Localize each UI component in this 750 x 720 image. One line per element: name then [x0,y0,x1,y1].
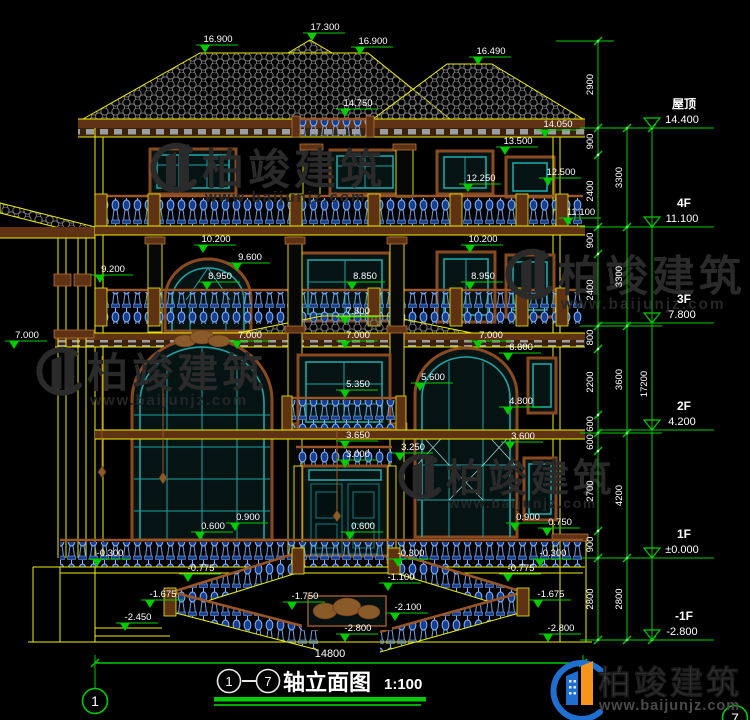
dim-chain-label: 2800 [614,588,625,609]
dim-chain-label: 2800 [585,588,596,609]
level-value: 14.400 [665,114,699,126]
drawing-title: 轴立面图 [283,670,371,695]
dim-tick-node [597,414,599,416]
elevation-mark-label: -1.675 [150,589,177,600]
bottom-dim-label: 14800 [315,648,346,660]
watermark-logo-icon [521,258,531,293]
dim-chain-label: 900 [585,233,596,249]
elevation-mark-label: 0.900 [236,512,260,523]
level-value: 11.100 [666,213,699,225]
elevation-mark-label: 8.850 [353,271,377,282]
elevation-mark-label: 16.900 [358,36,387,47]
level-name: 3F [677,292,691,306]
elevation-mark-label: 14.050 [543,119,572,130]
axis-number: 1 [91,693,99,709]
elevation-mark-label: 7.000 [479,330,503,341]
elevation-mark-label: 16.900 [203,34,232,45]
dim-chain-label: 800 [585,330,596,346]
watermark-logo-icon [64,348,74,389]
elevation-mark-label: 3.000 [346,449,370,460]
elevation-mark-label: 0.750 [548,517,572,528]
dim-tick-node [597,154,599,156]
elevation-mark-label: -2.800 [345,623,372,634]
dim-chain-label: 600 [585,434,596,450]
level-value: 4.200 [668,416,696,428]
level-value: ±0.000 [665,544,699,556]
elevation-drawing-canvas: 柏竣建筑www.baijunjz.com柏竣建筑www.baijunjz.com… [0,0,750,720]
watermark-logo-icon [166,152,176,186]
dim-chain-label: 3600 [614,369,625,390]
elevation-mark-label: 11.100 [567,207,595,218]
elevation-mark-label: 8.950 [208,271,232,282]
watermark-url-text: www.baijunjz.com [448,496,598,511]
watermark-logo-icon [535,250,545,293]
logo-building-left-icon [566,671,578,705]
elevation-mark-label: 3.250 [401,442,425,453]
dim-tick-node [597,450,599,452]
elevation-mark-label: -0.300 [540,548,567,559]
title-underline-thin [214,704,421,706]
elevation-mark-label: 10.200 [468,234,497,245]
elevation-mark-label: -1.750 [292,591,319,602]
dim-chain-label: 3300 [614,266,625,287]
elevation-mark-label: 13.500 [503,136,532,147]
elevation-mark-label: 10.200 [201,234,230,245]
elevation-mark-label: -2.450 [125,612,152,623]
elevation-mark-label: 8.950 [471,271,495,282]
elevation-mark-label: -0.775 [508,563,535,574]
dim-chain-label: 2900 [585,74,596,95]
watermark-brand-text: 柏竣建筑 [87,350,267,396]
elevation-mark-label: 7.800 [346,306,370,317]
level-name: 4F [677,196,691,210]
watermark-logo-icon [425,455,434,494]
elevation-mark-label: 3.650 [346,430,370,441]
title-underline-thick [214,697,426,702]
elevation-mark-label: 12.500 [546,167,575,178]
elevation-mark-label: 3.600 [511,431,535,442]
dim-chain-label: 2200 [585,371,596,392]
elevation-mark-label: 0.600 [351,521,375,532]
elevation-mark-label: 7.000 [238,330,262,341]
dim-tick-node [597,530,599,532]
watermark-logo-icon [52,356,62,389]
dim-chain-label: 2400 [585,279,596,300]
watermark-url-text: www.baijunjz.com [204,189,366,206]
elevation-mark-label: 9.600 [238,252,262,263]
watermark-logo-icon [413,462,422,493]
drawing-scale: 1:100 [384,676,422,693]
elevation-mark-label: 9.200 [101,264,125,275]
dim-chain-label: 900 [585,537,596,553]
level-name: -1F [675,609,693,623]
title-axis-start-number: 1 [225,674,232,689]
dim-chain-label: 2400 [585,180,596,201]
elevation-mark-label: 5.350 [346,379,370,390]
elevation-mark-label: -2.800 [548,623,575,634]
roof-tower-parapet [292,116,374,137]
elevation-mark-label: -0.300 [97,548,124,559]
elevation-mark-label: -1.100 [388,572,415,583]
dim-tick-node [597,253,599,255]
dim-chain-label: 17200 [639,371,650,397]
elevation-mark-label: 4.800 [509,396,533,407]
elevation-mark-label: -0.775 [188,563,215,574]
elevation-mark-label: -1.675 [538,589,565,600]
elevation-mark-label: 17.300 [310,22,339,33]
watermark-url-text: www.baijunjz.com [89,393,248,409]
elevation-mark-label: -2.100 [395,602,422,613]
elevation-mark-label: -0.300 [398,548,425,559]
elevation-mark-label: 7.000 [346,330,370,341]
dim-chain-label: 4200 [614,485,625,506]
elevation-mark-label: 6.600 [509,342,533,353]
elevation-mark-label: 16.490 [476,46,505,57]
dim-chain-label: 3300 [614,167,625,188]
elevation-mark-label: 5.600 [421,372,445,383]
elevation-mark-label: 7.000 [15,330,39,341]
elevation-mark-label: 0.600 [201,521,225,532]
logo-building-right-icon [581,661,593,705]
dim-chain-label: 900 [585,134,596,150]
elevation-mark-label: 12.250 [466,173,495,184]
footer-brand-text: 柏竣建筑 [598,664,742,701]
level-value: 7.800 [668,309,696,321]
watermark-brand-text: 柏竣建筑 [202,146,386,193]
elevation-mark-label: 14.750 [343,98,372,109]
level-name: 屋顶 [672,97,696,111]
level-name: 1F [677,527,691,541]
level-name: 2F [677,399,691,413]
watermark-logo-icon [179,144,189,186]
level-value: -2.800 [666,626,697,638]
footer-url-text: www.baijunjz.com [598,698,740,714]
dim-tick-node [597,348,599,350]
title-axis-end-number: 7 [264,674,271,689]
dim-chain-label: 600 [585,416,596,432]
dim-chain-label: 2700 [585,480,596,501]
elevation-mark-label: 0.900 [516,512,540,523]
